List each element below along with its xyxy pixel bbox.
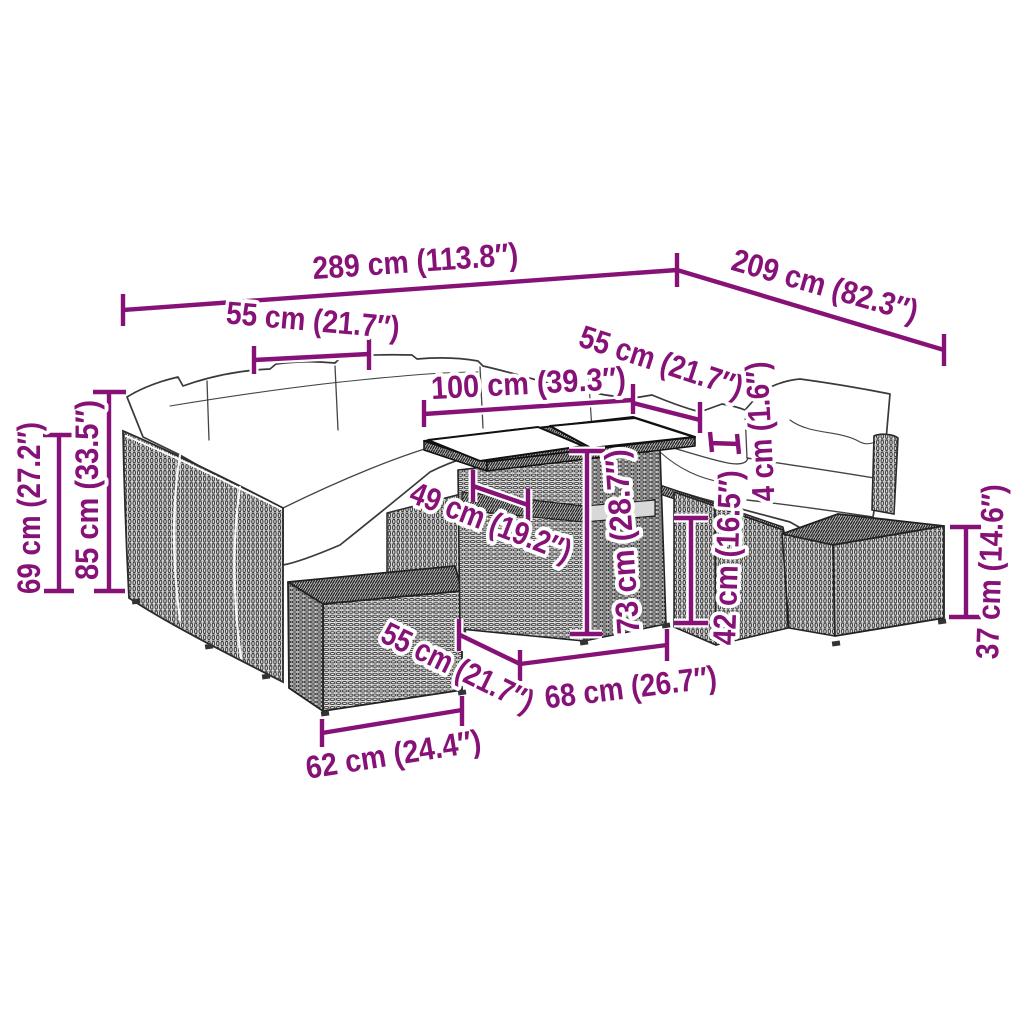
svg-text:42 cm (16.5″): 42 cm (16.5″) <box>706 470 748 646</box>
svg-text:37 cm (14.6″): 37 cm (14.6″) <box>969 484 1011 660</box>
svg-text:69 cm (27.2″): 69 cm (27.2″) <box>11 422 47 594</box>
svg-text:85 cm (33.5″): 85 cm (33.5″) <box>69 400 105 580</box>
